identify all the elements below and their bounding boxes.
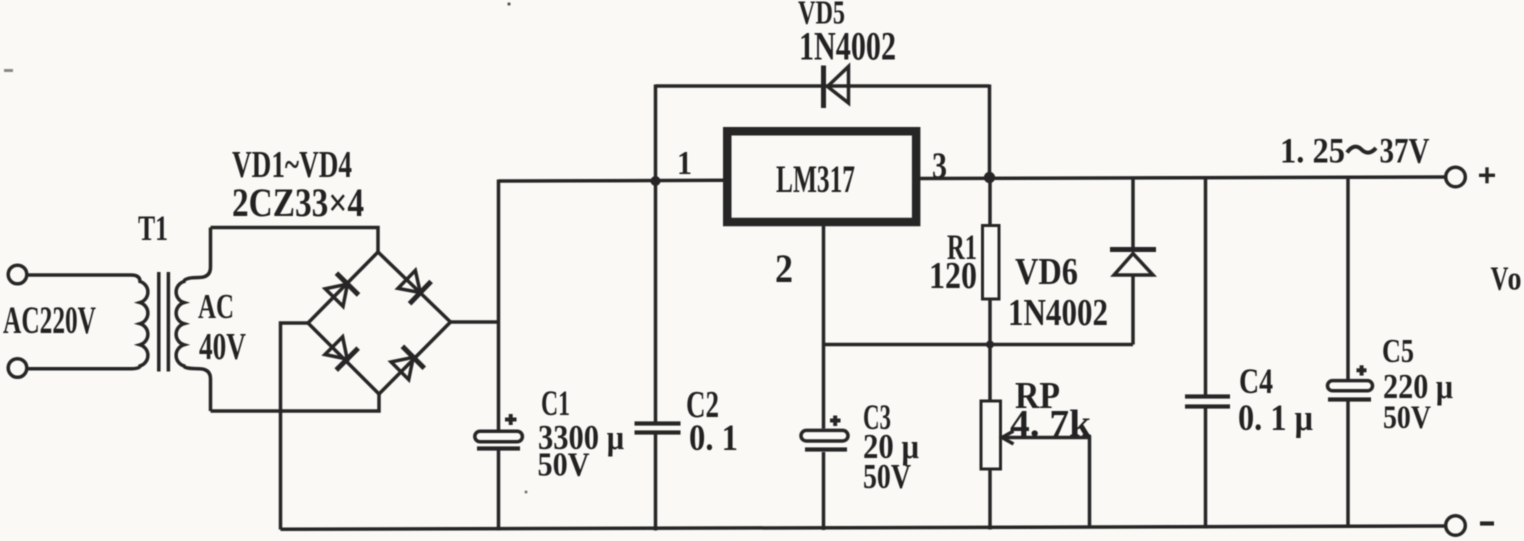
svg-text:40V: 40V [199,326,246,368]
svg-text:4. 7k: 4. 7k [1010,403,1092,445]
svg-text:T1: T1 [138,208,168,248]
svg-text:120: 120 [929,255,977,297]
svg-text:C5: C5 [1382,333,1414,370]
svg-text:2CZ33×4: 2CZ33×4 [232,180,364,225]
svg-text:50V: 50V [1383,400,1431,436]
svg-text:37V: 37V [1380,131,1430,171]
svg-text:0. 1 μ: 0. 1 μ [1238,398,1313,439]
svg-text:LM317: LM317 [776,158,855,201]
svg-text:1N4002: 1N4002 [799,24,896,69]
svg-text:C4: C4 [1239,361,1273,401]
svg-text:1: 1 [677,145,692,182]
svg-text:1. 25: 1. 25 [1280,131,1345,171]
svg-text:V: V [1491,261,1509,298]
svg-text:AC220V: AC220V [3,299,96,342]
svg-text:50V: 50V [863,457,911,496]
svg-text:1N4002: 1N4002 [1008,292,1108,334]
svg-text:2: 2 [775,246,793,291]
svg-text:o: o [1508,261,1522,298]
svg-text:50V: 50V [538,447,590,484]
svg-text:0. 1: 0. 1 [689,418,738,459]
svg-text:C1: C1 [541,383,570,423]
svg-text:AC: AC [198,287,234,326]
svg-text:3: 3 [932,146,947,187]
svg-text:VD6: VD6 [1015,251,1078,293]
